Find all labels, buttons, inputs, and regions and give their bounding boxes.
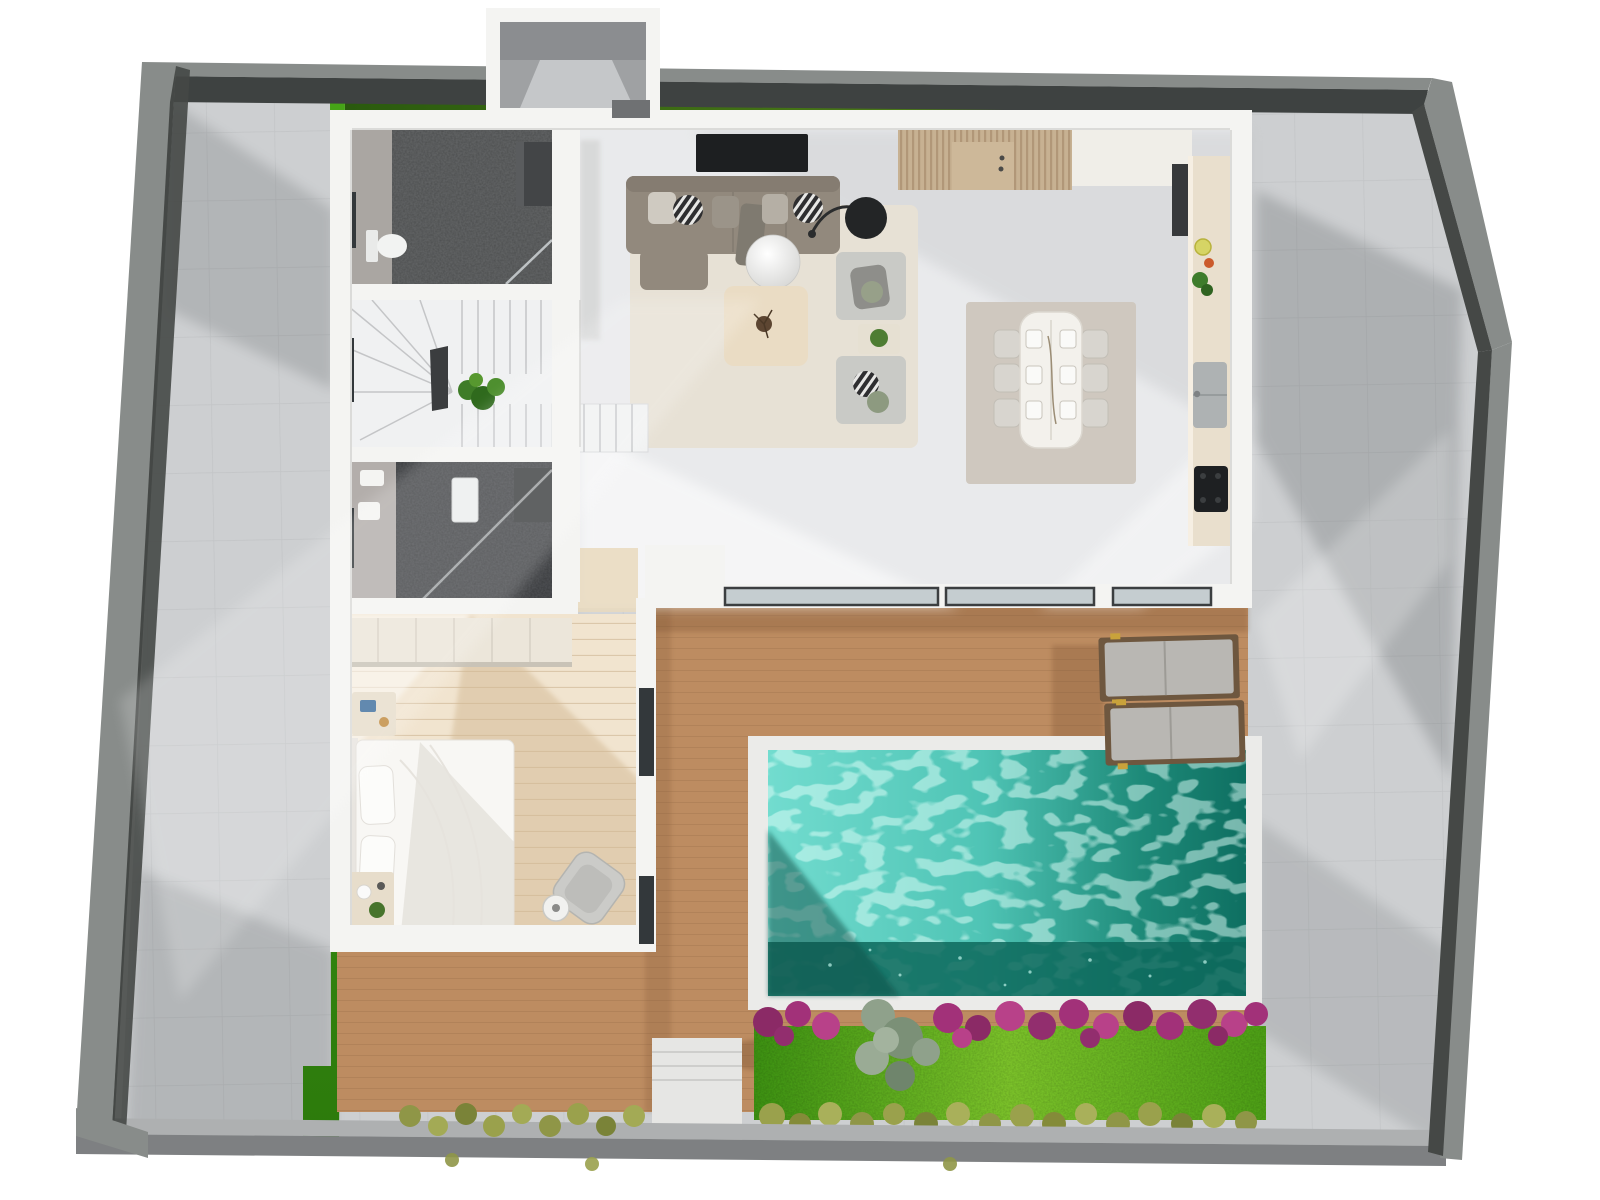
striped-pillow <box>673 195 703 225</box>
bathroom1-vanity <box>522 142 552 206</box>
floor-lamp-shade <box>845 197 887 239</box>
pendant-lamp <box>746 235 800 289</box>
side-table-plant <box>870 329 888 347</box>
lounger-cushion <box>1104 639 1233 696</box>
armchair-pillow <box>867 391 889 413</box>
dining-area <box>966 302 1136 484</box>
striped-pillow <box>793 193 823 223</box>
floor-plan-render <box>0 0 1600 1200</box>
vanity-counter-edge <box>516 142 524 206</box>
lounger-gold-bar <box>1118 763 1128 769</box>
wall-bedroom-south <box>330 925 656 952</box>
vestibule-floor-dark <box>500 22 646 60</box>
wall-east <box>1230 110 1252 608</box>
floor-shadow <box>580 140 600 340</box>
sun-lounger <box>1098 630 1240 706</box>
lounger-backrest-seam <box>1164 641 1165 695</box>
lounger-gold-bar <box>1116 699 1126 705</box>
sliding-glass-panel <box>1113 588 1211 605</box>
wall-living-sw-corner <box>645 545 725 608</box>
armchair-pillow <box>861 281 883 303</box>
counter-plant <box>1201 284 1213 296</box>
fruit <box>1204 258 1214 268</box>
pool <box>748 736 1262 1010</box>
counter-edge-highlight <box>1188 156 1193 546</box>
bedroom-window <box>639 688 654 776</box>
nightstand-south <box>348 872 394 930</box>
bathroom-1 <box>336 128 552 284</box>
sliding-glass-panel <box>946 588 1094 605</box>
entrance-door <box>612 100 650 118</box>
dining-chairs-right <box>1082 330 1108 427</box>
inset-dot <box>999 167 1004 172</box>
entrance-vestibule <box>486 8 660 120</box>
dining-chairs-left <box>994 330 1020 427</box>
toilet-tank <box>366 230 378 262</box>
wall-north <box>330 110 1252 130</box>
terrace-wall-shadow <box>645 606 1248 632</box>
sofa-pillow <box>712 196 739 228</box>
lounger-backrest-seam <box>1170 707 1171 759</box>
nightstand-plant <box>369 902 385 918</box>
sofa-pillow <box>648 192 676 224</box>
sliding-glass-panel <box>725 588 938 605</box>
stair-handrail <box>430 346 448 411</box>
toilet-bowl <box>377 234 407 258</box>
wall-bath1-south <box>330 284 580 300</box>
cooktop <box>1194 466 1228 512</box>
lounger-gold-bar <box>1110 633 1120 639</box>
lounger-cushion <box>1110 705 1239 760</box>
nightstand-item <box>377 882 385 890</box>
inset-dot <box>1000 156 1005 161</box>
sofa-pillow <box>762 194 788 224</box>
kitchen-sink <box>1193 362 1227 428</box>
tv <box>696 134 808 172</box>
sofa-chaise <box>640 250 708 290</box>
garden-bed <box>753 999 1268 1136</box>
fruit-bowl <box>1195 239 1211 255</box>
sun-lounger <box>1104 696 1246 770</box>
sliding-doors <box>725 588 1211 605</box>
sofa-back <box>626 176 840 192</box>
nightstand <box>348 872 394 930</box>
faucet <box>1194 391 1200 397</box>
side-table-cup <box>552 904 560 912</box>
vase <box>357 885 371 899</box>
bedroom-window <box>639 876 654 944</box>
floor-lamp-base <box>808 230 816 238</box>
slat-panel-inset <box>952 142 1014 190</box>
wall-basin <box>360 470 384 486</box>
